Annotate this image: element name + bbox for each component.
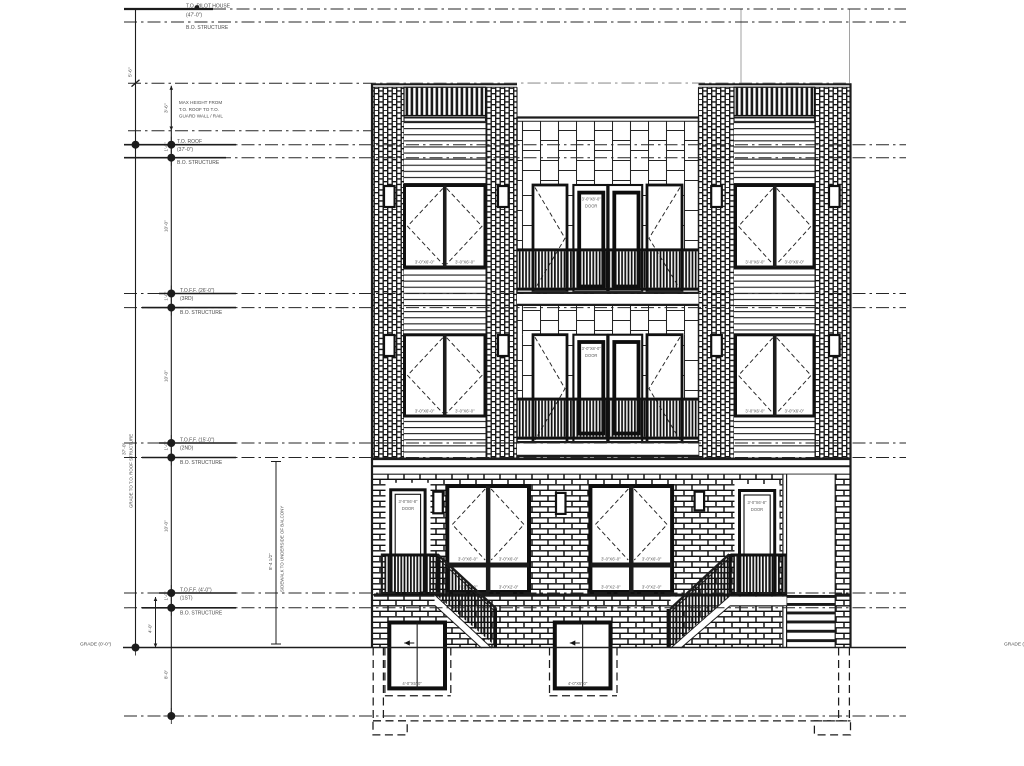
svg-text:8'-4 1/2": 8'-4 1/2" — [268, 553, 273, 570]
svg-text:T.O.F.F. (15'-0"): T.O.F.F. (15'-0") — [180, 438, 215, 444]
svg-text:SIDEWALK TO UNDERSIDE OF BALCO: SIDEWALK TO UNDERSIDE OF BALCONY — [280, 506, 285, 592]
svg-text:3'-6": 3'-6" — [164, 103, 170, 113]
svg-text:T.O. PILOT HOUSE: T.O. PILOT HOUSE — [186, 4, 231, 10]
svg-text:8'-0": 8'-0" — [164, 669, 169, 679]
svg-text:3'-0"X6'-0": 3'-0"X6'-0" — [601, 557, 621, 562]
svg-text:T.O.F.F. (4'-0"): T.O.F.F. (4'-0") — [180, 588, 212, 594]
svg-text:10'-0": 10'-0" — [164, 220, 169, 232]
svg-text:3'-0"X6'-8": 3'-0"X6'-8" — [398, 499, 418, 504]
svg-text:5'-6": 5'-6" — [128, 67, 134, 77]
svg-text:DOOR: DOOR — [751, 507, 763, 512]
svg-text:B.O. STRUCTURE: B.O. STRUCTURE — [177, 160, 220, 166]
svg-text:DOOR: DOOR — [402, 506, 414, 511]
svg-text:3'-0"X6'-0": 3'-0"X6'-0" — [415, 260, 435, 265]
svg-text:3'-0"X6'-0": 3'-0"X6'-0" — [415, 409, 435, 414]
svg-text:DOOR: DOOR — [585, 204, 597, 209]
svg-text:3'-0"X8'-0": 3'-0"X8'-0" — [582, 197, 602, 202]
svg-text:3'-0"X2'-0": 3'-0"X2'-0" — [642, 585, 662, 590]
svg-text:3'-0"X6'-0": 3'-0"X6'-0" — [499, 557, 519, 562]
svg-text:(1ST): (1ST) — [180, 596, 193, 602]
svg-text:4'-0"X5'-0": 4'-0"X5'-0" — [568, 681, 588, 686]
svg-text:GUARD WALL / RAIL: GUARD WALL / RAIL — [179, 114, 224, 119]
svg-text:3'-0"X6'-0": 3'-0"X6'-0" — [745, 409, 765, 414]
svg-text:4'-0"X5'-0": 4'-0"X5'-0" — [402, 681, 422, 686]
svg-text:MAX HEIGHT FROM: MAX HEIGHT FROM — [179, 100, 222, 105]
svg-text:3'-0"X6'-0": 3'-0"X6'-0" — [642, 557, 662, 562]
svg-text:37'-0": 37'-0" — [122, 442, 128, 455]
svg-text:(37'-0"): (37'-0") — [177, 147, 193, 153]
svg-text:B.O. STRUCTURE: B.O. STRUCTURE — [186, 25, 229, 31]
svg-text:10'-0": 10'-0" — [164, 520, 169, 532]
svg-text:T.O. ROOF: T.O. ROOF — [177, 139, 202, 145]
svg-text:3'-0"X8'-0": 3'-0"X8'-0" — [582, 346, 602, 351]
svg-text:(47'-0"): (47'-0") — [186, 13, 202, 19]
svg-text:10'-0": 10'-0" — [164, 370, 169, 382]
svg-text:B.O. STRUCTURE: B.O. STRUCTURE — [180, 610, 223, 616]
svg-text:3'-0"X6'-0": 3'-0"X6'-0" — [455, 409, 475, 414]
svg-text:3'-0"X6'-0": 3'-0"X6'-0" — [785, 409, 805, 414]
svg-text:4'-0": 4'-0" — [148, 623, 153, 633]
svg-text:3'-0"X6'-0": 3'-0"X6'-0" — [455, 260, 475, 265]
svg-text:B.O. STRUCTURE: B.O. STRUCTURE — [180, 460, 223, 466]
svg-text:3'-0"X6'-0": 3'-0"X6'-0" — [458, 557, 478, 562]
svg-text:3'-0"X2'-0": 3'-0"X2'-0" — [601, 585, 621, 590]
svg-text:DOOR: DOOR — [585, 353, 597, 358]
svg-text:GRADE TO T.O. ROOF STRUCTURE: GRADE TO T.O. ROOF STRUCTURE — [129, 434, 134, 508]
svg-text:3'-0"X2'-0": 3'-0"X2'-0" — [499, 585, 519, 590]
svg-text:3'-0"X6'-0": 3'-0"X6'-0" — [785, 260, 805, 265]
svg-text:3'-0"X6'-0": 3'-0"X6'-0" — [745, 260, 765, 265]
svg-text:(2ND): (2ND) — [180, 446, 194, 452]
svg-text:GRADE (0'-0"): GRADE (0'-0") — [80, 642, 112, 648]
svg-text:B.O. STRUCTURE: B.O. STRUCTURE — [180, 310, 223, 316]
svg-text:3'-0"X6'-8": 3'-0"X6'-8" — [747, 500, 767, 505]
svg-text:T.O.F.F. (26'-0"): T.O.F.F. (26'-0") — [180, 288, 215, 294]
svg-text:T.O. ROOF TO T.O.: T.O. ROOF TO T.O. — [179, 107, 219, 112]
svg-text:(3RD): (3RD) — [180, 296, 194, 302]
svg-text:GRADE (0'-0"): GRADE (0'-0") — [1004, 642, 1024, 648]
